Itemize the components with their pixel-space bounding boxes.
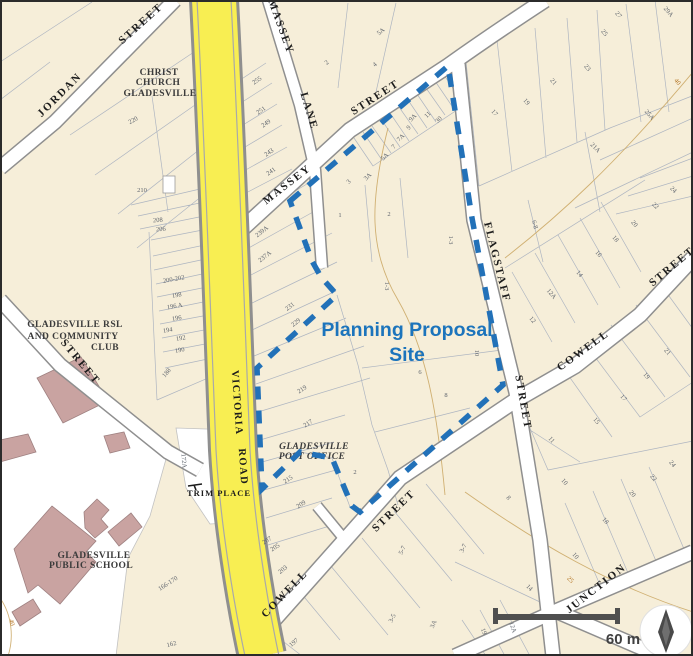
rsl-label-line2: AND COMMUNITY [28,332,119,342]
north-arrow-icon [640,605,692,656]
lot-number: 1 [338,212,341,219]
scale-bar-label: 60 m [606,631,640,648]
lot-number: 2 [353,469,356,476]
church-label-line1: CHRIST [140,68,179,78]
rsl-label-line1: GLADESVILLE RSL [27,320,123,330]
church-label-line3: GLADESVILLE [123,89,196,99]
lot-number: 8 [444,392,447,399]
planning-map: 220 210 208 206 200-202 198 196 A 196 19… [0,0,693,656]
church-building [163,176,175,193]
site-title-line1: Planning Proposal [321,319,492,341]
school-label-line2: PUBLIC SCHOOL [49,561,133,571]
site-title-line2: Site [389,344,425,366]
scale-bar-line [495,614,618,620]
lot-number: 206 [156,226,167,234]
lot-number: 1-3 [447,236,454,245]
lot-number: 208 [153,217,163,225]
post-office-label-line1: GLADESVILLE [279,442,349,452]
lot-number: 2 [387,211,390,218]
lot-number: 10 [473,350,480,357]
school-label-line1: GLADESVILLE [57,551,130,561]
scale-bar-tick-left [493,608,498,624]
rsl-label-line3: CLUB [91,343,119,353]
church-label-line2: CHURCH [136,78,181,88]
lot-number: 172A [179,453,187,468]
lot-number: 210 [137,187,147,194]
lot-number: 1-3 [383,282,390,291]
scale-bar-tick-right [615,608,620,624]
